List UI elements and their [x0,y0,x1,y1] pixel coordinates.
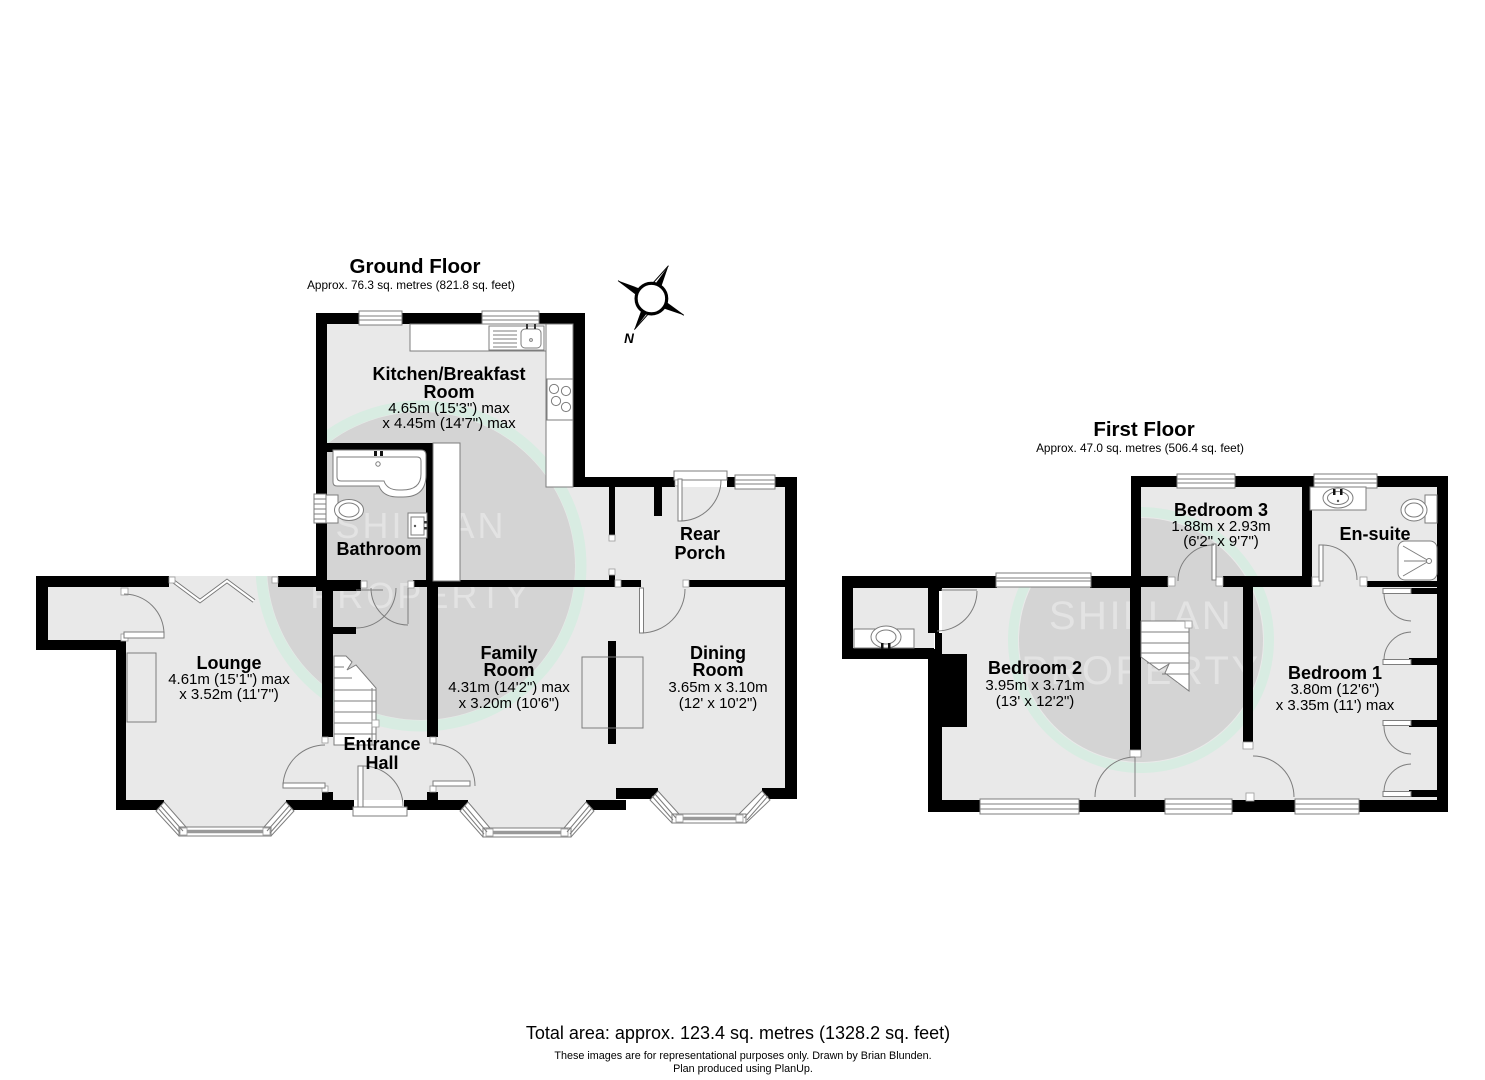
svg-text:x 3.35m (11') max: x 3.35m (11') max [1276,697,1395,714]
svg-text:Approx. 47.0 sq. metres (506.4: Approx. 47.0 sq. metres (506.4 sq. feet) [1036,441,1244,455]
svg-text:4.31m (14'2") max: 4.31m (14'2") max [448,679,570,696]
svg-text:Entrance: Entrance [343,734,420,754]
svg-text:x 3.52m (11'7"): x 3.52m (11'7") [179,686,279,703]
svg-text:(6'2" x 9'7"): (6'2" x 9'7") [1183,533,1259,550]
svg-text:Bedroom 1: Bedroom 1 [1288,663,1382,683]
svg-text:3.80m (12'6"): 3.80m (12'6") [1290,681,1379,698]
svg-text:Approx. 76.3 sq. metres (821.8: Approx. 76.3 sq. metres (821.8 sq. feet) [307,278,515,292]
svg-text:(13' x 12'2"): (13' x 12'2") [996,693,1075,710]
svg-text:Bedroom 3: Bedroom 3 [1174,500,1268,520]
svg-text:Ground Floor: Ground Floor [350,255,481,278]
svg-text:Room: Room [693,660,744,680]
svg-text:Total area: approx. 123.4 sq.: Total area: approx. 123.4 sq. metres (13… [526,1023,950,1043]
svg-text:Hall: Hall [365,753,398,773]
svg-text:En-suite: En-suite [1339,524,1410,544]
svg-text:Lounge: Lounge [197,653,262,673]
svg-text:Kitchen/Breakfast: Kitchen/Breakfast [372,364,525,384]
svg-text:Room: Room [484,660,535,680]
svg-text:Rear: Rear [680,524,720,544]
svg-text:(12' x 10'2"): (12' x 10'2") [679,695,758,712]
svg-text:3.65m x 3.10m: 3.65m x 3.10m [668,679,767,696]
svg-text:Porch: Porch [674,543,725,563]
svg-text:These images are for represent: These images are for representational pu… [554,1050,931,1062]
svg-text:x 3.20m (10'6"): x 3.20m (10'6") [459,695,560,712]
svg-text:3.95m x 3.71m: 3.95m x 3.71m [985,677,1084,694]
svg-text:x 4.45m (14'7") max: x 4.45m (14'7") max [382,415,516,432]
svg-text:First Floor: First Floor [1093,418,1194,441]
svg-text:Plan produced using PlanUp.: Plan produced using PlanUp. [673,1063,813,1075]
svg-text:Room: Room [424,382,475,402]
svg-text:N: N [624,331,634,346]
svg-text:Bedroom 2: Bedroom 2 [988,658,1082,678]
svg-text:Bathroom: Bathroom [337,539,422,559]
